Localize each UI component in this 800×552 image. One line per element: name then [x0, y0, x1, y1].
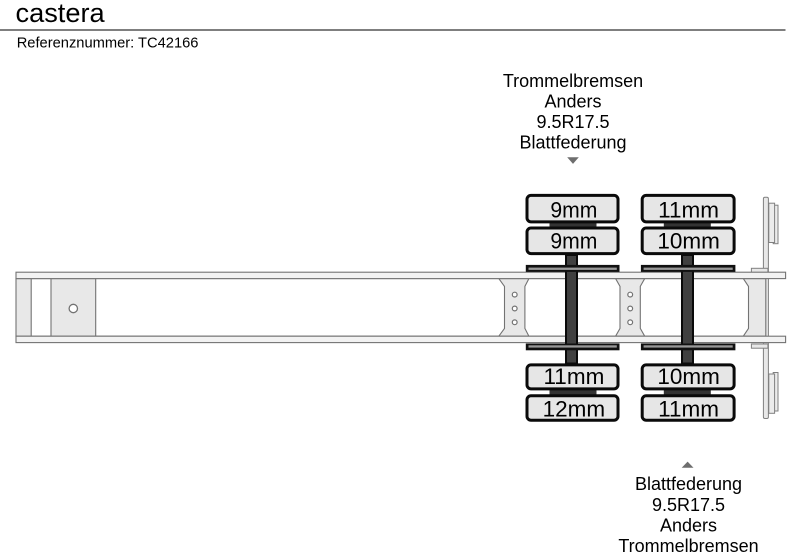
svg-text:9mm: 9mm	[550, 197, 597, 222]
svg-text:10mm: 10mm	[657, 364, 720, 389]
svg-text:9.5R17.5: 9.5R17.5	[536, 112, 609, 132]
svg-text:Trommelbremsen: Trommelbremsen	[503, 71, 643, 91]
svg-text:11mm: 11mm	[658, 197, 719, 222]
svg-text:Referenznummer: TC42166: Referenznummer: TC42166	[17, 36, 199, 52]
svg-text:Trommelbremsen: Trommelbremsen	[618, 536, 758, 552]
svg-text:Blattfederung: Blattfederung	[519, 133, 626, 153]
svg-text:Anders: Anders	[660, 516, 717, 536]
svg-text:11mm: 11mm	[658, 396, 719, 421]
svg-text:12mm: 12mm	[543, 396, 606, 421]
svg-text:9.5R17.5: 9.5R17.5	[652, 495, 725, 515]
svg-text:9mm: 9mm	[550, 229, 597, 254]
svg-text:11mm: 11mm	[543, 364, 604, 389]
svg-text:Anders: Anders	[544, 92, 601, 112]
svg-text:castera: castera	[16, 0, 106, 28]
svg-text:10mm: 10mm	[657, 229, 720, 254]
svg-text:Blattfederung: Blattfederung	[635, 474, 742, 494]
